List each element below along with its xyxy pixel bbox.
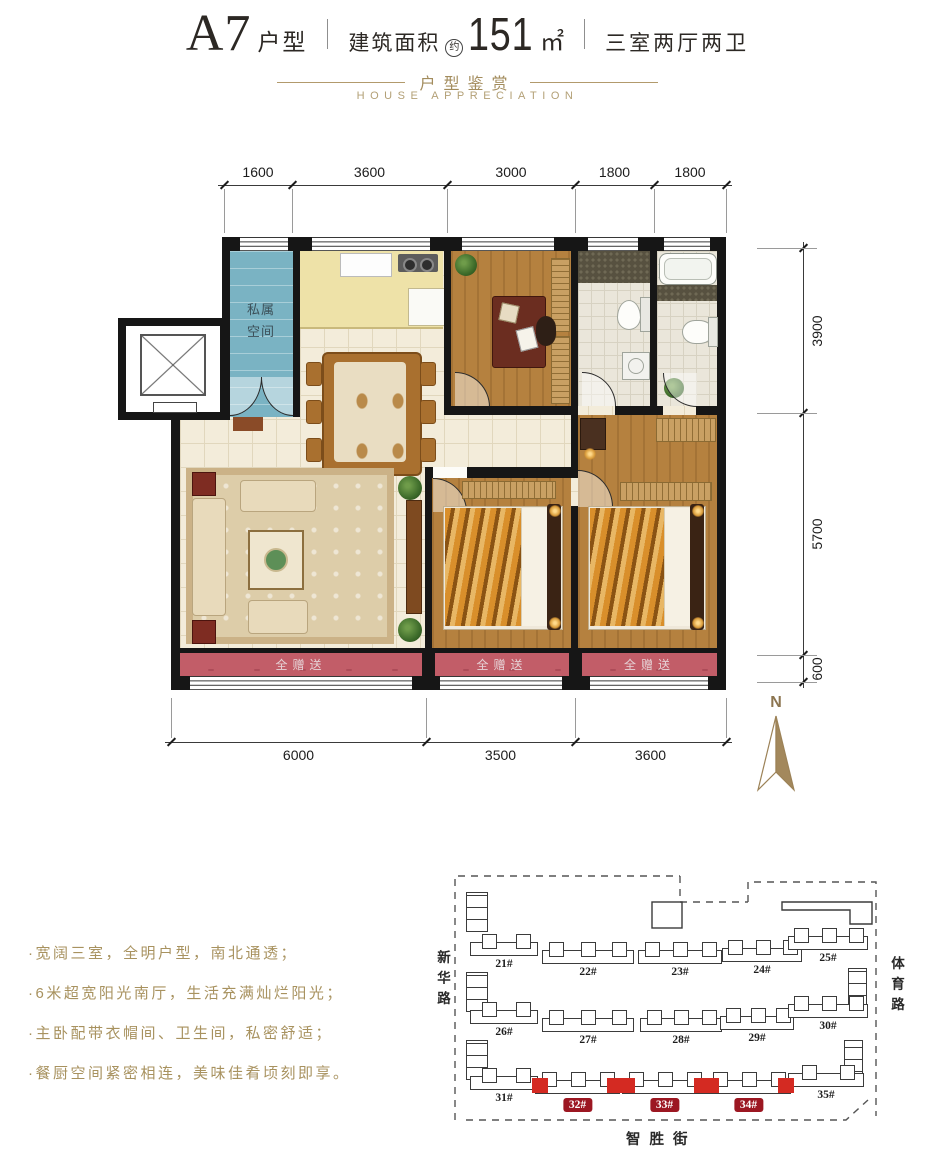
dim-line-bottom xyxy=(165,742,732,743)
gift-label: 全赠送 xyxy=(624,656,675,673)
desk-paper xyxy=(498,302,519,323)
lamp-glow xyxy=(692,505,704,517)
building-tower xyxy=(673,942,688,957)
wall-left xyxy=(171,410,180,690)
rooms-summary: 三室两厅两卫 xyxy=(605,27,749,57)
area-unit: ㎡ xyxy=(540,22,564,57)
page: A7 户型 建筑面积 约 151 ㎡ 三室两厅两卫 户型鉴赏 HOUSE APP… xyxy=(0,0,935,1156)
building-tower xyxy=(840,1065,855,1080)
building-tower xyxy=(516,934,531,949)
building-tower xyxy=(756,940,771,955)
window xyxy=(664,237,710,251)
gift-balcony: 全赠送 xyxy=(435,653,569,676)
bed-blanket xyxy=(590,508,664,626)
feature-item: ·宽阔三室，全明户型，南北通透； xyxy=(28,934,351,974)
page-title: A7 户型 建筑面积 约 151 ㎡ 三室两厅两卫 xyxy=(0,8,935,60)
building-tower xyxy=(581,1010,596,1025)
window xyxy=(462,237,554,251)
dim-extension xyxy=(726,698,727,738)
building-tower xyxy=(581,942,596,957)
bed-headboard xyxy=(690,504,704,630)
building-label: 35# xyxy=(817,1089,834,1101)
washer-drum xyxy=(628,358,644,374)
siteplan-building xyxy=(788,928,868,950)
building-tower xyxy=(794,928,809,943)
dim-extension xyxy=(426,698,427,738)
building-tower xyxy=(549,1010,564,1025)
building-tower xyxy=(482,934,497,949)
sofa-armchair xyxy=(248,600,308,634)
balcony-post xyxy=(422,648,435,676)
side-table xyxy=(192,620,216,644)
sofa-loveseat xyxy=(240,480,316,512)
feature-item: ·6米超宽阳光南厅，生活充满灿烂阳光； xyxy=(28,974,351,1014)
plant-icon xyxy=(398,618,422,642)
building-highlight-cap xyxy=(778,1078,794,1093)
bed-pillows xyxy=(521,508,548,626)
dim-extension xyxy=(757,655,817,656)
dining-chair xyxy=(420,400,436,424)
subtitle-rule-right xyxy=(530,82,658,83)
unit-type-suffix: 户型 xyxy=(257,23,307,57)
building-tower xyxy=(742,1072,757,1087)
private-space-label: 私属空间 xyxy=(244,299,278,343)
building-tower xyxy=(822,928,837,943)
dim-extension xyxy=(654,189,655,233)
wall-right xyxy=(717,237,726,690)
dim-extension xyxy=(224,189,225,233)
dim-extension xyxy=(757,413,817,414)
building-highlight-cap xyxy=(532,1078,548,1093)
wall-bedroom1-master xyxy=(571,506,578,648)
dim-extension xyxy=(575,698,576,738)
building-tower xyxy=(849,928,864,943)
dim-value-right: 600 xyxy=(809,657,825,680)
building-label-badge: 32# xyxy=(563,1098,592,1112)
bed-headboard xyxy=(547,504,561,630)
siteplan-building xyxy=(470,1002,538,1024)
building-label: 25# xyxy=(819,952,836,964)
feature-item: ·餐厨空间紧密相连，美味佳肴顷刻即享。 xyxy=(28,1054,351,1094)
building-label: 22# xyxy=(579,966,596,978)
building-label: 28# xyxy=(672,1034,689,1046)
bathtub-inner xyxy=(664,258,712,280)
bath1-mosaic xyxy=(578,251,650,283)
building-label: 27# xyxy=(579,1034,596,1046)
building-label: 26# xyxy=(495,1026,512,1038)
gift-label: 全赠送 xyxy=(275,656,326,673)
building-tower xyxy=(794,996,809,1011)
dining-chair xyxy=(420,362,436,386)
dim-value-top: 3600 xyxy=(354,164,385,180)
building-tower xyxy=(802,1065,817,1080)
siteplan-building xyxy=(788,1065,864,1087)
kitchen-fridge xyxy=(408,288,445,326)
feature-item: ·主卧配带衣帽间、卫生间，私密舒适； xyxy=(28,1014,351,1054)
building-label: 24# xyxy=(753,964,770,976)
building-tower xyxy=(645,942,660,957)
bed-pillows xyxy=(664,508,691,626)
wall-study-bath1 xyxy=(571,251,578,413)
siteplan-building xyxy=(542,1010,634,1032)
siteplan-building xyxy=(470,1068,538,1090)
building-tower xyxy=(482,1002,497,1017)
siteplan-building xyxy=(706,1072,791,1094)
dim-value-top: 1600 xyxy=(242,164,273,180)
building-tower xyxy=(751,1008,766,1023)
lamp-glow xyxy=(692,617,704,629)
siteplan-building xyxy=(622,1072,707,1094)
sofa-long xyxy=(192,498,226,616)
side-table xyxy=(192,472,216,496)
elevator-icon xyxy=(140,334,206,396)
window xyxy=(588,237,638,251)
building-tower xyxy=(849,996,864,1011)
wall-balcony-kitchen xyxy=(293,251,300,417)
balcony-post xyxy=(569,648,582,676)
dining-chair xyxy=(306,438,322,462)
siteplan-building xyxy=(638,942,722,964)
window xyxy=(240,237,288,251)
dim-value-top: 3000 xyxy=(495,164,526,180)
building-tower xyxy=(647,1010,662,1025)
table-decor xyxy=(264,548,288,572)
title-divider xyxy=(584,19,585,49)
window xyxy=(590,676,708,690)
bed-blanket xyxy=(445,508,521,626)
dim-extension xyxy=(757,248,817,249)
building-highlight-cap xyxy=(619,1078,635,1093)
building-tower xyxy=(516,1002,531,1017)
building-label-badge: 33# xyxy=(650,1098,679,1112)
dim-value-right: 3900 xyxy=(809,315,825,346)
siteplan-building xyxy=(470,934,538,956)
building-label: 31# xyxy=(495,1092,512,1104)
area-value: 151 xyxy=(468,11,533,57)
dim-line-right xyxy=(803,242,804,688)
wall-bath1-bath2 xyxy=(650,251,657,413)
siteplan-building xyxy=(788,996,868,1018)
siteplan: 新华路 体育路 智胜街 21#22#23#24#25#26#27#28#29#3… xyxy=(430,862,935,1156)
lamp-glow xyxy=(584,448,596,460)
dim-value-bottom: 3600 xyxy=(635,747,666,763)
title-divider xyxy=(327,19,328,49)
building-tower xyxy=(482,1068,497,1083)
siteplan-building xyxy=(535,1072,620,1094)
wall-living-bedroom1 xyxy=(425,467,432,676)
area-label: 建筑面积 xyxy=(348,27,440,57)
dim-value-right: 5700 xyxy=(809,518,825,549)
toilet-icon xyxy=(617,300,641,330)
building-tower xyxy=(674,1010,689,1025)
building-tower xyxy=(702,1010,717,1025)
exterior-notch xyxy=(180,251,224,318)
building-label: 30# xyxy=(819,1020,836,1032)
dining-chair xyxy=(306,362,322,386)
building-tower xyxy=(822,996,837,1011)
master-clothes-rack xyxy=(620,482,712,501)
wall-dining-study xyxy=(444,251,451,413)
road-label-bottom: 智胜街 xyxy=(626,1128,697,1149)
gift-balcony: 全赠送 xyxy=(582,653,717,676)
compass-north-icon xyxy=(748,712,804,794)
building-tower xyxy=(702,942,717,957)
dining-chair xyxy=(420,438,436,462)
stove-burner xyxy=(403,258,417,272)
building-tower xyxy=(549,942,564,957)
building-label: 29# xyxy=(748,1032,765,1044)
road-label-right: 体育路 xyxy=(886,956,906,1018)
dining-chair xyxy=(306,400,322,424)
road-label-left: 新华路 xyxy=(432,950,452,1012)
lamp-glow xyxy=(549,617,561,629)
building-label: 21# xyxy=(495,958,512,970)
wall-corridor-master xyxy=(571,415,578,470)
dim-value-bottom: 6000 xyxy=(283,747,314,763)
door-gap xyxy=(433,467,467,478)
building-highlight-cap xyxy=(703,1078,719,1093)
bedroom1-clothes-rack xyxy=(462,481,556,499)
window xyxy=(190,676,412,690)
siteplan-building xyxy=(720,1008,794,1030)
subtitle-en: HOUSE APPRECIATION xyxy=(0,90,935,102)
plant-icon xyxy=(455,254,477,276)
siteplan-building xyxy=(542,942,634,964)
wall-mid xyxy=(444,406,578,415)
window xyxy=(312,237,430,251)
building-label-badge: 34# xyxy=(734,1098,763,1112)
entry-mat xyxy=(233,417,263,431)
master-wardrobe xyxy=(656,418,716,442)
compass-north-label: N xyxy=(748,694,804,712)
dim-value-top: 1800 xyxy=(599,164,630,180)
dim-extension xyxy=(171,698,172,738)
dim-extension xyxy=(292,189,293,233)
study-chair xyxy=(536,316,556,346)
toilet-tank xyxy=(708,317,718,347)
siteplan-building xyxy=(640,1010,722,1032)
dim-extension xyxy=(447,189,448,233)
building-tower xyxy=(612,1010,627,1025)
dim-extension xyxy=(575,189,576,233)
building-tower xyxy=(571,1072,586,1087)
gift-label: 全赠送 xyxy=(476,656,527,673)
unit-code: A7 xyxy=(186,8,252,60)
dim-extension xyxy=(726,189,727,233)
dressing-table xyxy=(580,418,606,450)
building-tower xyxy=(728,940,743,955)
building-tower xyxy=(726,1008,741,1023)
kitchen-sink xyxy=(340,253,392,277)
elevator-door xyxy=(153,402,197,413)
building-tower xyxy=(612,942,627,957)
dining-table-runner xyxy=(334,362,406,462)
lamp-glow xyxy=(549,505,561,517)
dim-extension xyxy=(757,682,817,683)
stove-burner xyxy=(420,258,434,272)
dim-value-bottom: 3500 xyxy=(485,747,516,763)
building-label: 23# xyxy=(671,966,688,978)
subtitle-rule-left xyxy=(277,82,405,83)
feature-list: ·宽阔三室，全明户型，南北通透；·6米超宽阳光南厅，生活充满灿烂阳光；·主卧配带… xyxy=(28,934,351,1094)
plant-icon xyxy=(398,476,422,500)
building-tower xyxy=(658,1072,673,1087)
bath2-mosaic xyxy=(657,285,717,301)
wall-mid xyxy=(696,406,726,415)
study-bookshelf xyxy=(551,336,570,404)
tower-block xyxy=(466,892,488,932)
hall-cabinet xyxy=(406,500,422,614)
window xyxy=(440,676,562,690)
approx-badge-icon: 约 xyxy=(445,39,463,57)
gift-balcony: 全赠送 xyxy=(180,653,422,676)
wall-mid xyxy=(615,406,663,415)
dim-value-top: 1800 xyxy=(674,164,705,180)
building-tower xyxy=(516,1068,531,1083)
